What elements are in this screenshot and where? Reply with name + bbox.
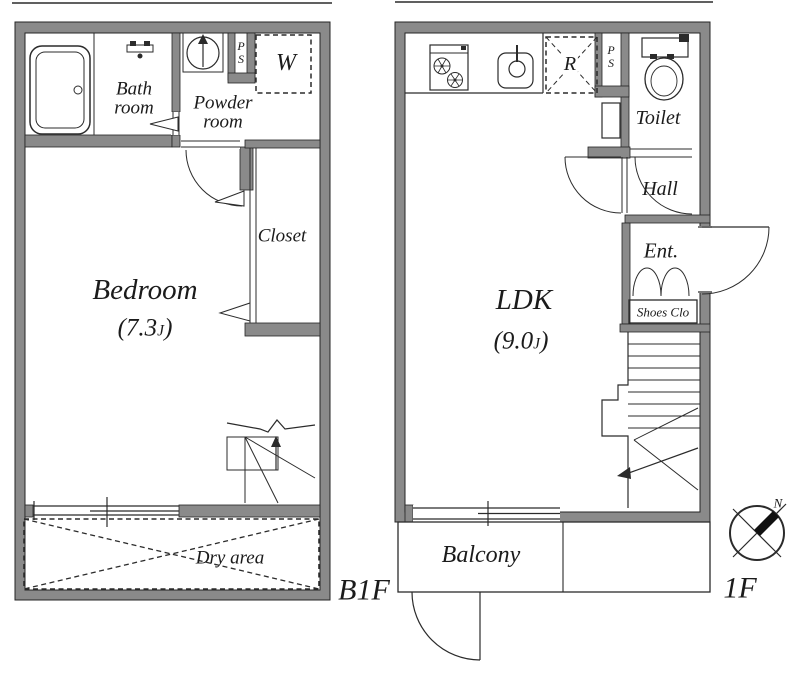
b1f-window — [33, 497, 179, 527]
floorplan-canvas: Bath room Powder room P S W Closet Bedro… — [0, 0, 787, 681]
washbasin-icon — [183, 33, 223, 72]
dry-area-box — [24, 519, 319, 589]
compass-icon — [730, 504, 786, 560]
entrance-label: Ent. — [644, 240, 678, 261]
f1-outer-wall — [395, 22, 710, 522]
bedroom-label: Bedroom — [92, 276, 197, 306]
shoes-closet-label: Shoes Clo — [637, 305, 689, 318]
stairs-up-arrow-icon — [271, 436, 281, 447]
toilet-icon — [642, 34, 689, 100]
bedroom-size-label: (7.3J) — [118, 315, 173, 341]
compass-needle — [754, 511, 779, 536]
balcony-door-arc — [412, 592, 480, 660]
b1f-floor-label: B1F — [338, 576, 390, 607]
ldk-size-label: (9.0J) — [494, 328, 549, 354]
balcony-label: Balcony — [442, 543, 521, 567]
bath-door-wedge-icon — [150, 117, 178, 131]
f1-pipe-space-label: P S — [607, 44, 614, 70]
closet-label: Closet — [258, 226, 307, 245]
kitchen-sink-icon — [498, 45, 533, 88]
b1f-bath-door — [150, 112, 181, 135]
b1f-stairs-icon — [227, 420, 315, 503]
ldk-label: LDK — [496, 286, 552, 316]
toilet-label: Toilet — [636, 108, 681, 128]
bathtub-icon — [30, 46, 90, 134]
bathroom-label: Bath room — [114, 80, 153, 119]
powder-room-door — [181, 139, 244, 206]
dry-area-label: Dry area — [196, 548, 264, 567]
powder-room-label: Powder room — [193, 94, 252, 133]
b1f-pipe-space-label: P S — [237, 40, 244, 66]
washer-space-label: W — [276, 51, 296, 75]
bath-faucet-icon — [127, 41, 153, 59]
ps-cabinet-box — [602, 103, 620, 138]
stove-icon — [430, 45, 468, 90]
hall-door — [565, 157, 627, 213]
f1-stairs-icon — [602, 332, 700, 508]
f1-floor-label: 1F — [723, 574, 756, 605]
hall-label: Hall — [642, 179, 678, 199]
entrance-door — [698, 226, 769, 294]
compass-north-label: N — [774, 496, 783, 509]
fridge-space-label: R — [562, 54, 578, 74]
stairs-down-arrow-icon — [617, 467, 631, 479]
